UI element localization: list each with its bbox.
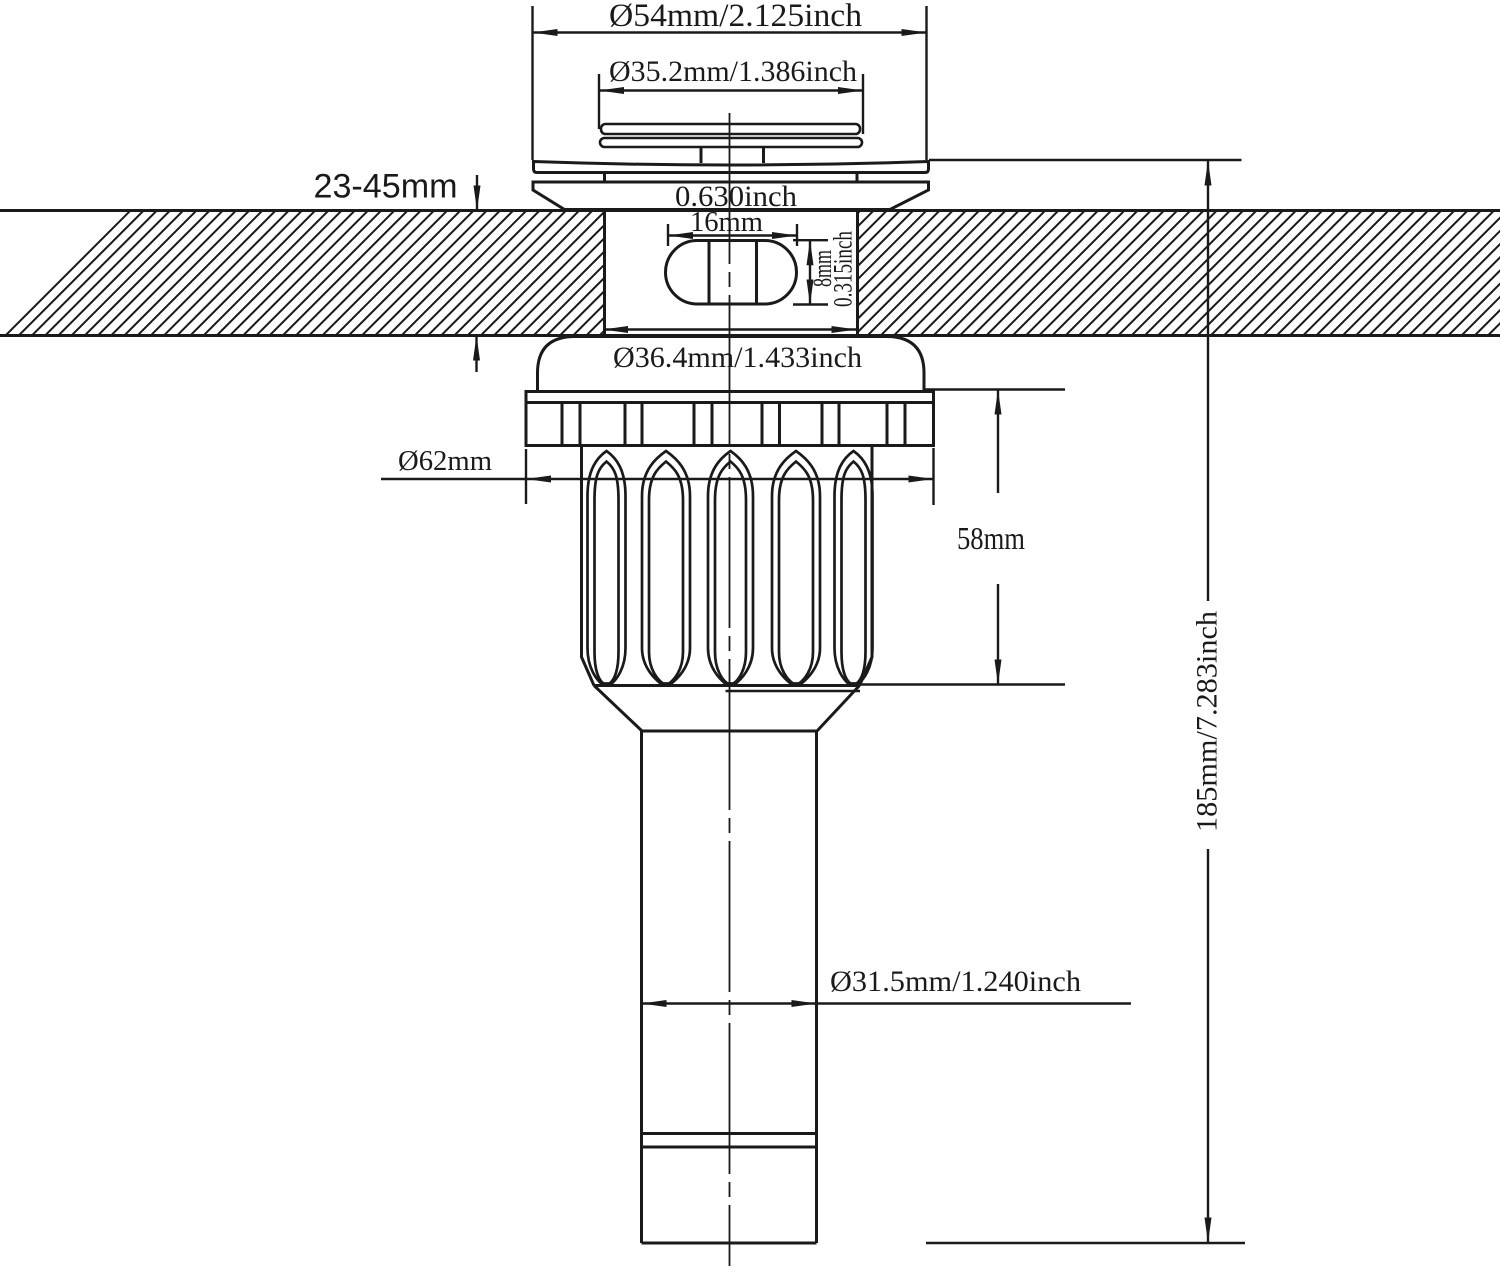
svg-text:Ø35.2mm/1.386inch: Ø35.2mm/1.386inch <box>609 55 857 88</box>
svg-text:0.315inch: 0.315inch <box>829 231 858 307</box>
svg-text:58mm: 58mm <box>957 520 1025 556</box>
svg-text:Ø62mm: Ø62mm <box>398 445 492 477</box>
svg-text:Ø54mm/2.125inch: Ø54mm/2.125inch <box>609 0 863 34</box>
svg-text:185mm/7.283inch: 185mm/7.283inch <box>1191 611 1224 832</box>
svg-text:16mm: 16mm <box>690 207 763 238</box>
svg-text:Ø31.5mm/1.240inch: Ø31.5mm/1.240inch <box>830 965 1081 998</box>
svg-text:Ø36.4mm/1.433inch: Ø36.4mm/1.433inch <box>613 341 862 374</box>
svg-text:23-45mm: 23-45mm <box>314 168 458 206</box>
